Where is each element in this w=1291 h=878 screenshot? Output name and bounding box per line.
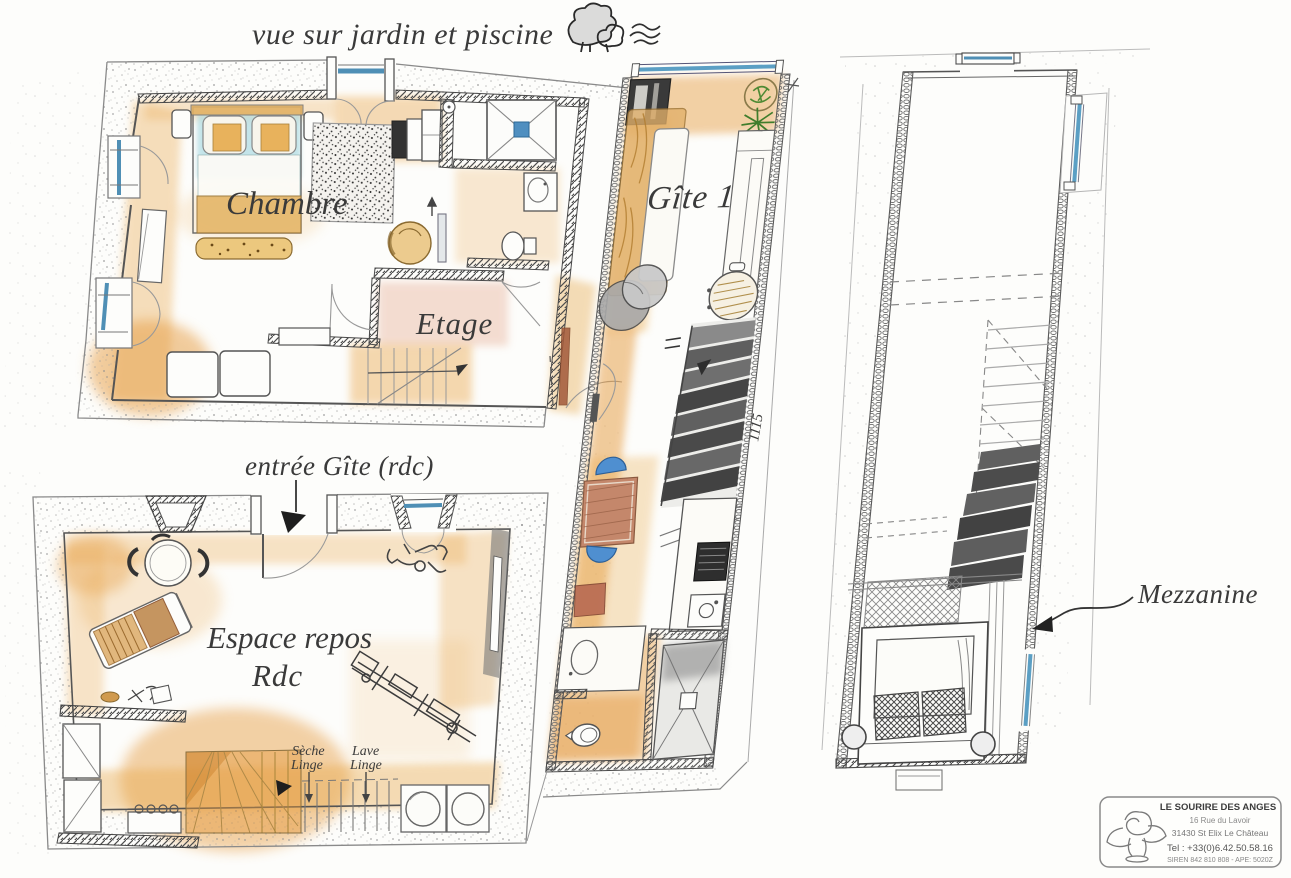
svg-text:Linge: Linge — [290, 758, 323, 773]
svg-text:Chambre: Chambre — [226, 186, 348, 222]
svg-text:Sèche: Sèche — [292, 744, 325, 759]
svg-text:Gîte 1: Gîte 1 — [645, 179, 737, 217]
svg-text:16 Rue du Lavoir: 16 Rue du Lavoir — [1190, 816, 1251, 825]
svg-text:Rdc: Rdc — [251, 658, 303, 693]
svg-text:entrée Gîte (rdc): entrée Gîte (rdc) — [245, 451, 434, 481]
svg-text:SIREN 842 810 808 - APE: 5020Z: SIREN 842 810 808 - APE: 5020Z — [1167, 857, 1274, 864]
svg-text:Linge: Linge — [349, 758, 382, 773]
svg-text:Tel : +33(0)6.42.50.58.16: Tel : +33(0)6.42.50.58.16 — [1167, 843, 1273, 854]
svg-text:Mezzanine: Mezzanine — [1137, 579, 1258, 609]
svg-text:Lave: Lave — [351, 744, 379, 759]
svg-text:Espace repos: Espace repos — [206, 620, 372, 655]
svg-text:31430 St Elix Le Château: 31430 St Elix Le Château — [1172, 828, 1269, 838]
svg-text:vue sur jardin et piscine: vue sur jardin et piscine — [252, 18, 553, 51]
svg-text:Etage: Etage — [415, 306, 493, 341]
svg-text:LE SOURIRE DES ANGES: LE SOURIRE DES ANGES — [1160, 802, 1276, 813]
